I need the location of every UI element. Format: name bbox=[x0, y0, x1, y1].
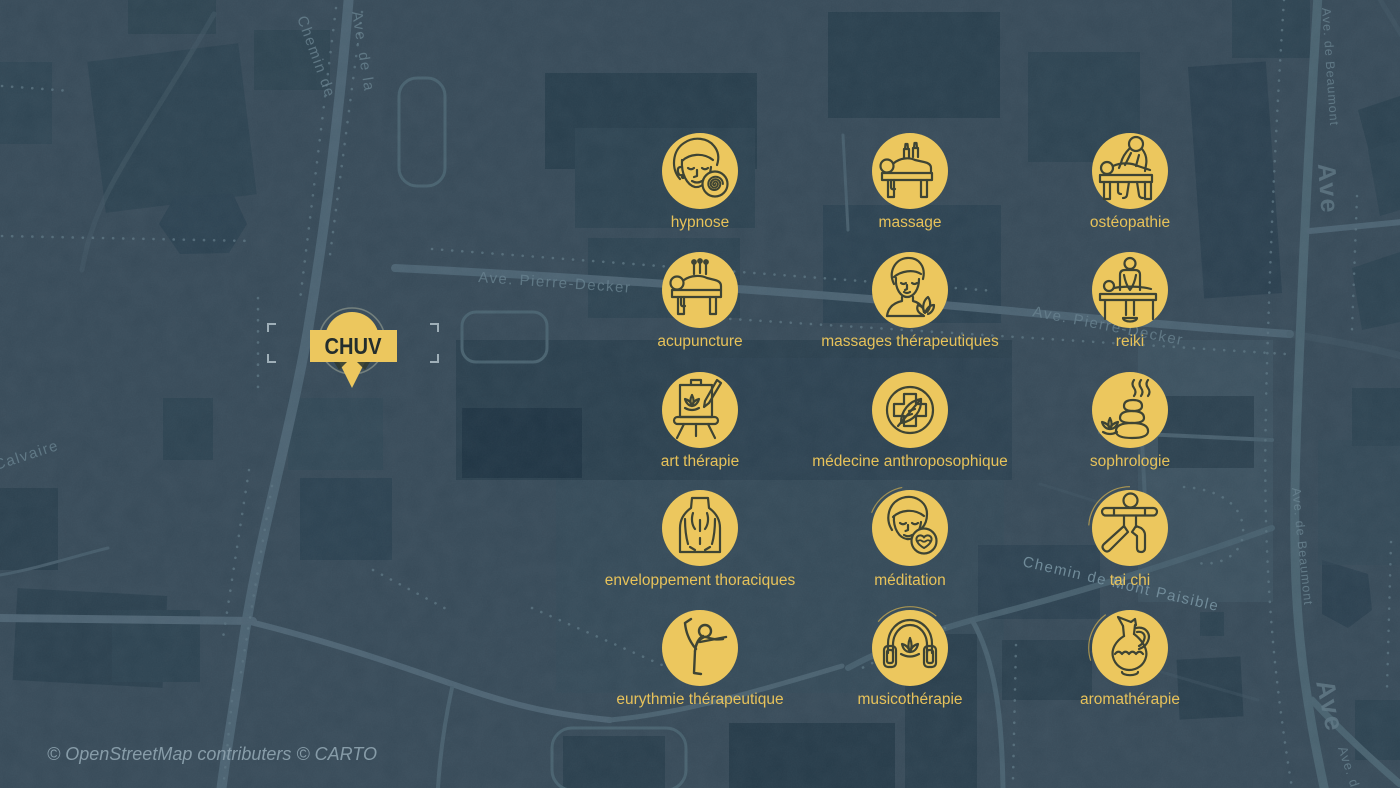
svg-text:CHUV: CHUV bbox=[325, 333, 383, 359]
